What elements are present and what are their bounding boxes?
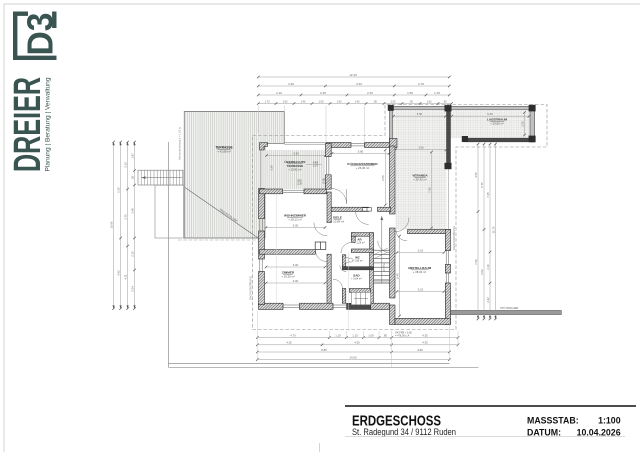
svg-text:Planung | Beratung | Verwaltun: Planung | Beratung | Verwaltung <box>45 77 52 171</box>
svg-text:7.45: 7.45 <box>427 187 431 193</box>
svg-text:4.11: 4.11 <box>123 274 127 280</box>
svg-text:18 STG: 18 STG <box>383 263 386 272</box>
svg-text:6.30: 6.30 <box>116 187 120 193</box>
svg-text:4.35: 4.35 <box>422 341 428 345</box>
svg-text:3.30: 3.30 <box>288 82 294 86</box>
svg-text:+ 26,30 m²: + 26,30 m² <box>356 166 370 170</box>
svg-text:1.00: 1.00 <box>368 334 374 338</box>
svg-text:2.10: 2.10 <box>130 251 134 257</box>
svg-text:4.66: 4.66 <box>116 270 120 276</box>
svg-text:14.50: 14.50 <box>350 356 357 360</box>
svg-text:6.05: 6.05 <box>381 175 385 181</box>
svg-text:MASSSTAB:: MASSSTAB: <box>527 416 579 426</box>
svg-text:2,39: 2,39 <box>297 182 302 185</box>
svg-text:1.60: 1.60 <box>319 100 324 103</box>
svg-text:1.40: 1.40 <box>355 100 360 103</box>
svg-text:1.40: 1.40 <box>301 100 306 103</box>
svg-text:6.00: 6.00 <box>293 279 299 283</box>
svg-text:2.25: 2.25 <box>320 91 326 95</box>
svg-text:+ 38,02 m²: + 38,02 m² <box>413 270 427 274</box>
svg-text:8.80: 8.80 <box>321 348 327 352</box>
svg-text:12.40: 12.40 <box>349 73 357 77</box>
svg-text:+ 1,98 m²: + 1,98 m² <box>352 259 363 262</box>
svg-text:5.45: 5.45 <box>487 112 493 116</box>
svg-text:2.70: 2.70 <box>418 82 424 86</box>
svg-text:1:100: 1:100 <box>598 416 621 426</box>
svg-text:4.25: 4.25 <box>286 341 292 345</box>
svg-text:St. Radegund 34 / 9112 Ruden: St. Radegund 34 / 9112 Ruden <box>352 427 456 437</box>
svg-text:5.95: 5.95 <box>293 151 299 155</box>
svg-text:4.35: 4.35 <box>422 334 428 338</box>
svg-text:STÜTZMAUER: STÜTZMAUER <box>500 306 518 310</box>
svg-text:3.75: 3.75 <box>123 214 127 220</box>
svg-text:6.00: 6.00 <box>293 223 299 227</box>
svg-text:DACHVORSPRUNG: DACHVORSPRUNG <box>452 226 456 250</box>
svg-text:2.54: 2.54 <box>130 286 134 292</box>
svg-text:3.40: 3.40 <box>356 82 362 86</box>
svg-text:.90: .90 <box>409 100 413 103</box>
svg-text:6.00: 6.00 <box>293 263 299 267</box>
svg-text:3.80: 3.80 <box>417 348 423 352</box>
svg-text:.90: .90 <box>443 100 447 103</box>
svg-text:2.26: 2.26 <box>270 165 274 171</box>
svg-text:11.76: 11.76 <box>491 226 495 233</box>
svg-text:+ 1,29 m²: + 1,29 m² <box>354 242 365 245</box>
svg-text:1.60: 1.60 <box>427 100 432 103</box>
svg-text:1.90: 1.90 <box>337 100 342 103</box>
svg-text:+ 29,80 m²: + 29,80 m² <box>490 122 504 126</box>
svg-text:+ 5,64 m²: + 5,64 m² <box>351 278 362 281</box>
svg-text:DREIER: DREIER <box>7 77 49 172</box>
svg-text:D3: D3 <box>20 13 61 56</box>
svg-text:+ 28,12 m²: + 28,12 m² <box>288 218 302 222</box>
svg-text:+ 23,92 m²: + 23,92 m² <box>289 168 302 172</box>
svg-text:1.87: 1.87 <box>130 153 134 159</box>
svg-text:.90: .90 <box>373 100 377 103</box>
svg-text:5.75: 5.75 <box>480 182 484 188</box>
svg-text:4.70: 4.70 <box>290 334 296 338</box>
svg-text:+ 30,42 m²: + 30,42 m² <box>413 178 427 182</box>
svg-text:10.04.2026: 10.04.2026 <box>577 428 621 438</box>
svg-text:7.20: 7.20 <box>474 259 478 265</box>
svg-text:1.60: 1.60 <box>283 100 288 103</box>
svg-text:+ 10,84 m²: + 10,84 m² <box>331 220 345 224</box>
svg-text:.96: .96 <box>130 175 134 179</box>
svg-text:1.70: 1.70 <box>265 100 270 103</box>
svg-text:5.10: 5.10 <box>418 287 424 291</box>
svg-text:10.96: 10.96 <box>109 221 113 228</box>
svg-text:1.15: 1.15 <box>352 334 358 338</box>
svg-text:2.42: 2.42 <box>486 297 490 303</box>
svg-text:2.10: 2.10 <box>276 91 282 95</box>
svg-text:.85: .85 <box>383 334 387 338</box>
svg-text:+ 41,68 m²: + 41,68 m² <box>217 150 231 154</box>
svg-text:8.45: 8.45 <box>395 273 399 279</box>
svg-text:2.10: 2.10 <box>486 264 490 270</box>
svg-text:2.50: 2.50 <box>520 121 524 127</box>
svg-text:5.80: 5.80 <box>358 149 364 153</box>
svg-text:3.10: 3.10 <box>123 162 127 168</box>
svg-text:7.25: 7.25 <box>486 192 490 198</box>
svg-text:4.55: 4.55 <box>474 172 478 178</box>
svg-text:6.00: 6.00 <box>480 269 484 275</box>
svg-text:DACHVORSPRUNG: DACHVORSPRUNG <box>248 276 252 300</box>
svg-text:4.55: 4.55 <box>354 341 360 345</box>
svg-text:1.55: 1.55 <box>407 91 413 95</box>
svg-text:1.15: 1.15 <box>434 91 440 95</box>
svg-text:3.49: 3.49 <box>130 208 134 214</box>
svg-text:= 476,00 ü.A.: = 476,00 ü.A. <box>395 335 410 338</box>
svg-text:2,07: 2,07 <box>313 164 319 168</box>
svg-text:2.00: 2.00 <box>391 100 396 103</box>
svg-text:5.10: 5.10 <box>418 248 424 252</box>
svg-text:Absturzsicherung h = 1,00 m: Absturzsicherung h = 1,00 m <box>178 127 182 160</box>
svg-text:TERRASSE: TERRASSE <box>287 164 303 168</box>
svg-text:2.32: 2.32 <box>367 91 373 95</box>
svg-text:DATUM:: DATUM: <box>527 428 561 438</box>
svg-text:1.10: 1.10 <box>335 334 341 338</box>
svg-text:5.50: 5.50 <box>417 112 423 116</box>
svg-text:3.50: 3.50 <box>418 146 424 150</box>
